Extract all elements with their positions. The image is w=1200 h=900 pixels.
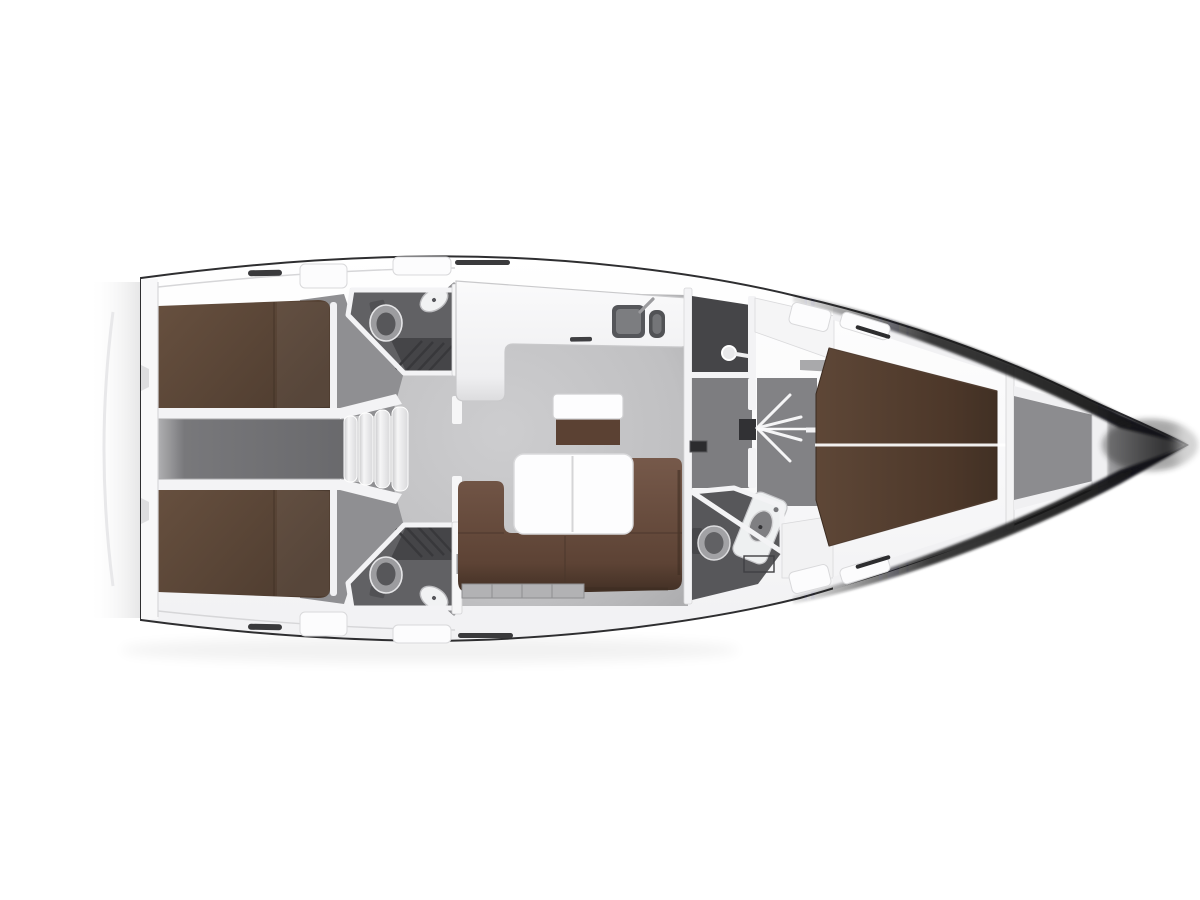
transom-step-notch — [141, 498, 149, 524]
swim-platform — [141, 279, 158, 619]
lobby-wall-lower — [748, 448, 756, 488]
mast-cabinet — [553, 394, 623, 445]
galley-sink-second-basin — [653, 314, 662, 334]
shower-head — [722, 346, 736, 360]
berth-center-split — [815, 444, 1011, 447]
entry-step — [739, 419, 756, 440]
berth-trim-board — [330, 485, 337, 596]
toe-rail-slit — [248, 270, 282, 277]
deck-hatch — [300, 612, 347, 636]
step-tread — [375, 410, 390, 488]
counter-detail-slit — [570, 337, 592, 342]
galley-sink-basin — [616, 309, 641, 334]
toe-rail-slit — [455, 260, 510, 265]
floorplan-svg — [0, 0, 1200, 900]
toilet-bowl — [377, 563, 396, 586]
stern-soft-shadow — [88, 282, 142, 618]
forward-shower-floor — [692, 296, 750, 372]
berth-trim-board — [330, 302, 337, 413]
berth-pillow-zone — [277, 485, 329, 596]
step-tread — [359, 413, 373, 485]
mast-cabinet-base — [556, 417, 620, 445]
shower-lobby-wall — [690, 372, 756, 378]
transom-step-notch — [141, 365, 149, 391]
companionway-garage-top — [393, 257, 451, 275]
toe-rail-slit — [248, 624, 282, 631]
deck-hatch — [300, 264, 347, 288]
sofa-base-locker — [462, 584, 584, 598]
corridor-wall-bottom — [156, 479, 344, 490]
step-tread — [392, 407, 408, 491]
corridor-wall-top — [156, 408, 344, 419]
yacht-floorplan-canvas — [0, 0, 1200, 900]
salon-table — [514, 454, 633, 534]
berth-pillow-zone — [277, 302, 329, 413]
floor-hatch-slit — [690, 441, 707, 452]
engine-corridor-floor — [158, 419, 346, 479]
lobby-wall-upper — [748, 378, 756, 410]
fwd-bulkhead — [1006, 366, 1014, 530]
transom-band — [141, 279, 158, 619]
toe-rail-slit — [458, 633, 513, 638]
mast-cabinet-top — [553, 394, 623, 419]
forward-shower — [690, 296, 756, 378]
engine-corridor — [156, 408, 346, 490]
toilet-bowl — [705, 532, 724, 554]
toilet-bowl — [377, 313, 396, 336]
step-tread — [344, 416, 357, 482]
bow-tip-fade — [1176, 407, 1200, 483]
companionway-garage-bottom — [393, 625, 451, 643]
